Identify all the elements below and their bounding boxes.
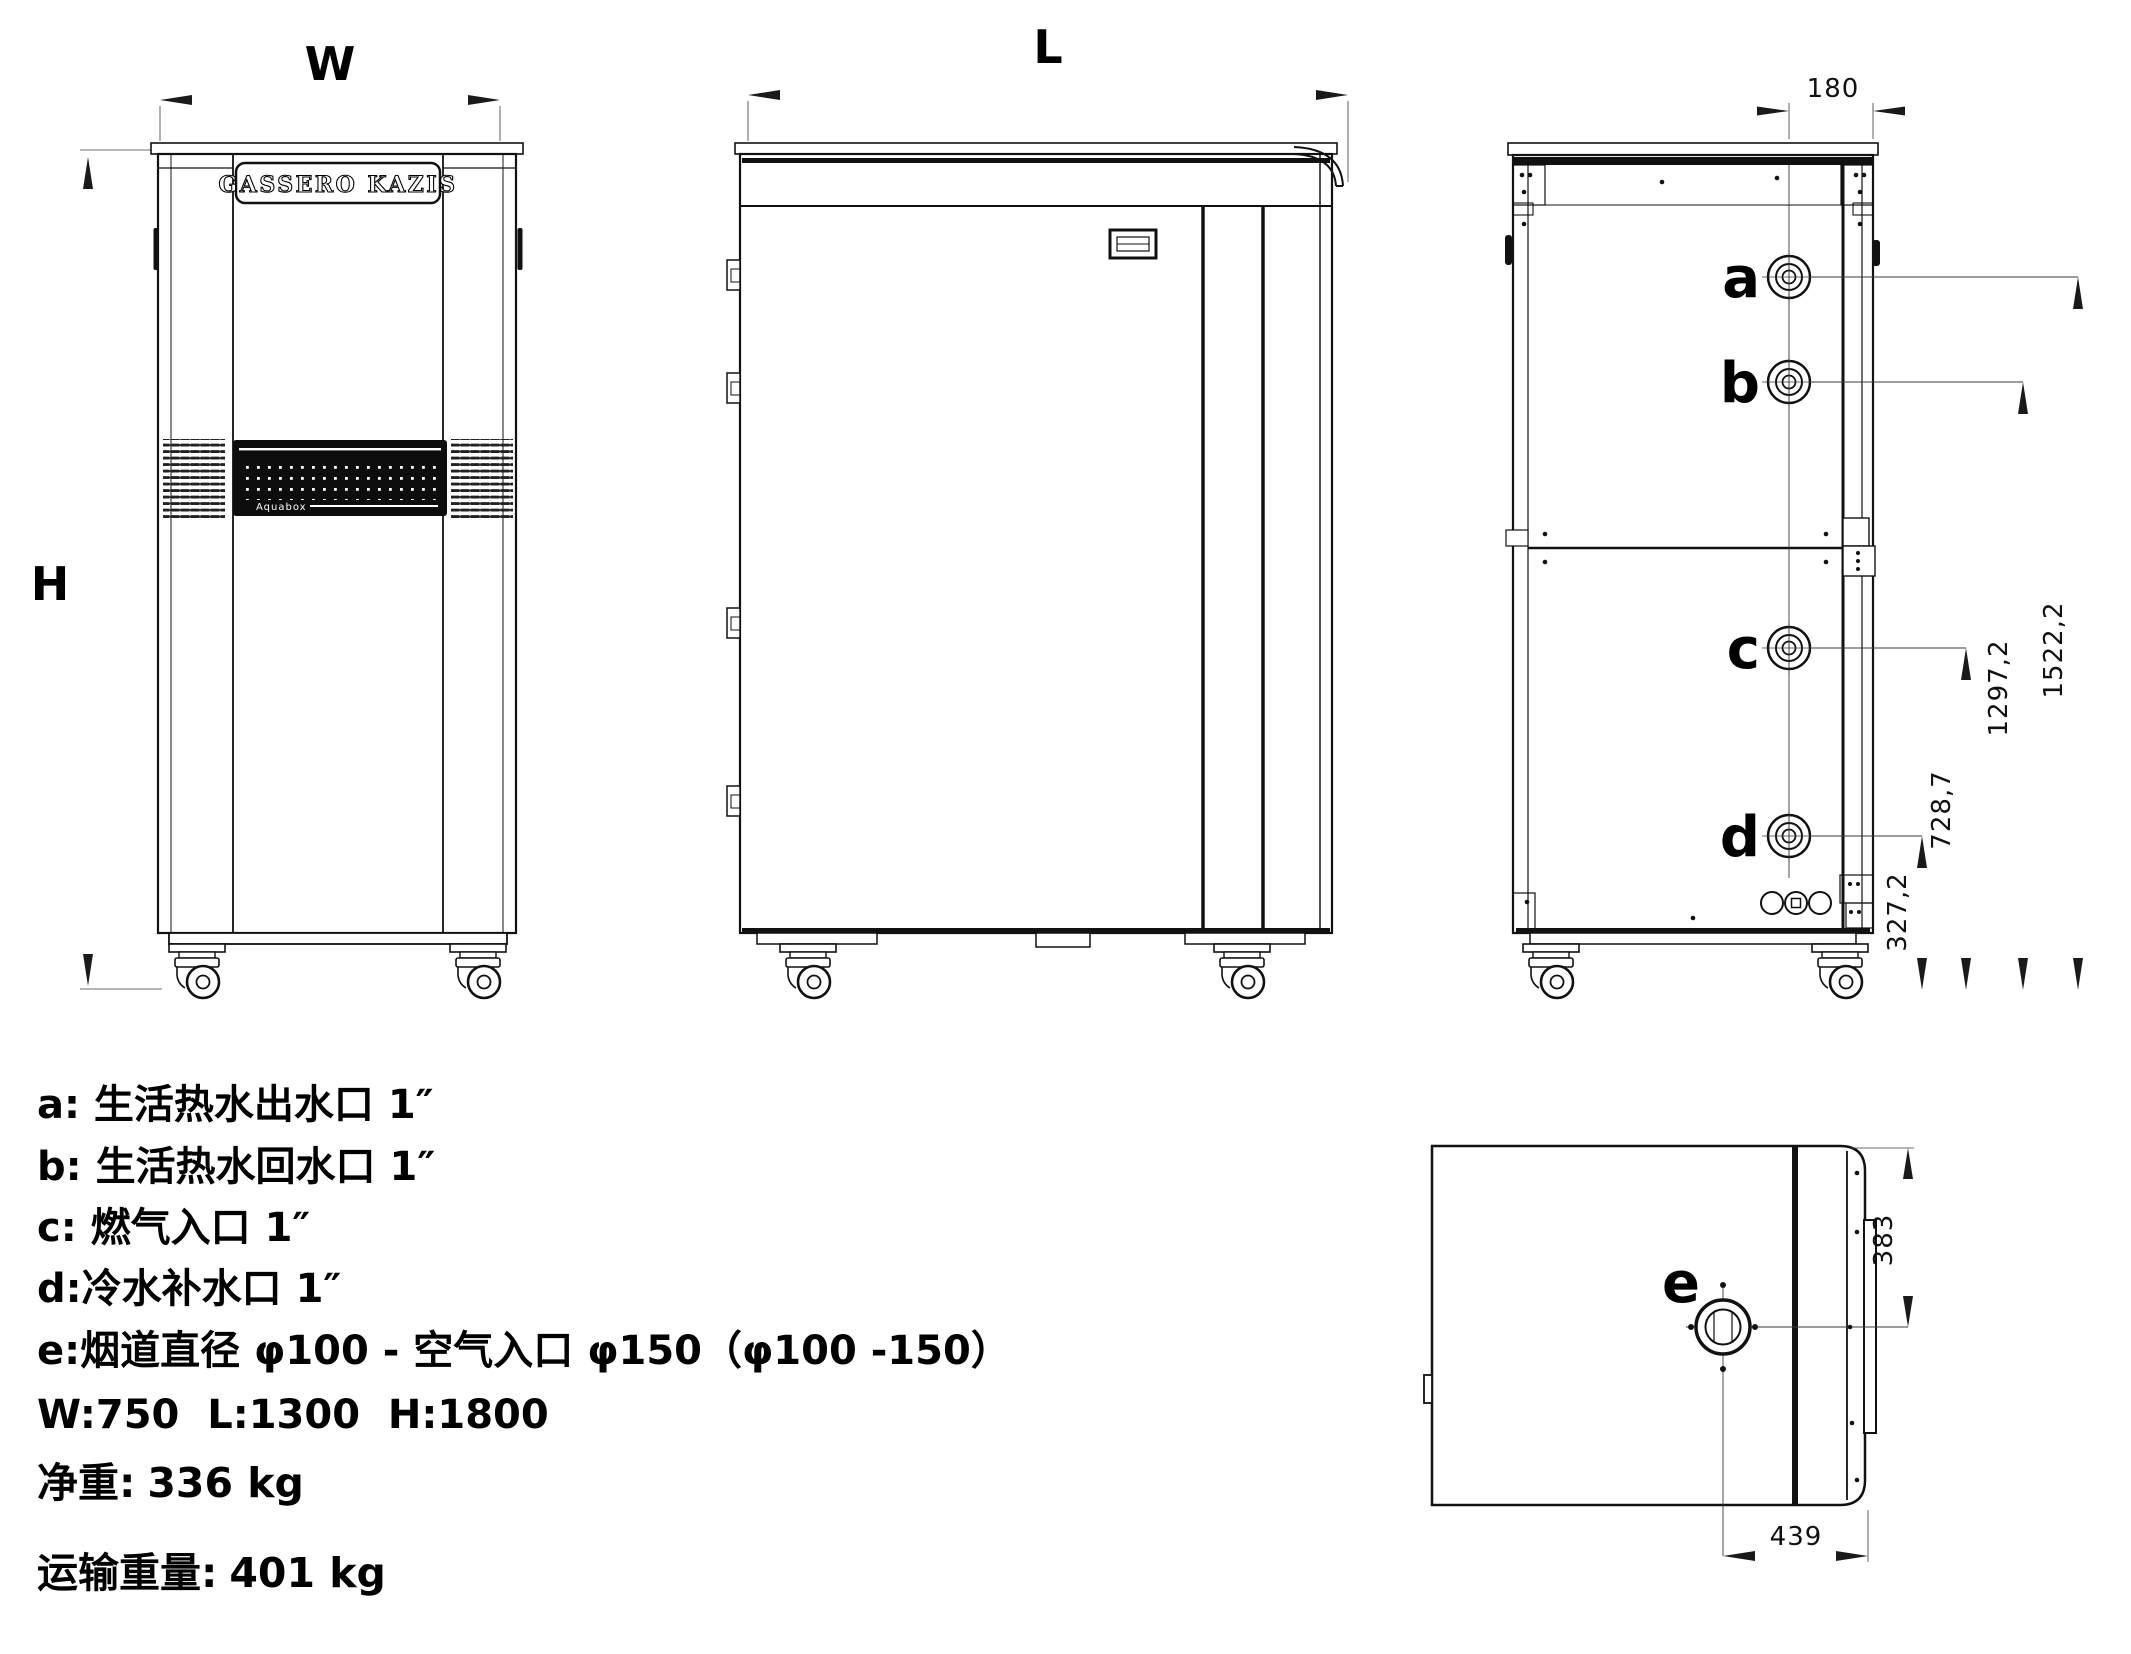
brand-nameplate-text: GASSERO KAZIS — [218, 172, 457, 198]
shipping-weight-line: 运输重量:401 kg — [37, 1550, 386, 1597]
arrow-down — [83, 954, 93, 986]
edge-latch — [1505, 235, 1512, 265]
door-hinge — [727, 608, 740, 638]
legend-text-c: 燃气入口 1″ — [91, 1205, 311, 1251]
port-e-label: e — [1662, 1251, 1700, 1316]
shipping-weight-value: 401 kg — [229, 1549, 385, 1597]
port-b: b — [1720, 351, 1816, 416]
legend-key-d: d: — [37, 1266, 82, 1312]
legend-dims-text: W:750 L:1300 H:1800 — [37, 1392, 549, 1438]
legend-line-e: e:烟道直径 φ100 - 空气入口 φ150（φ100 -150） — [37, 1328, 1011, 1374]
dim-1297: 1297,2 — [1984, 640, 2014, 737]
front-tab — [1424, 1375, 1432, 1403]
port-d-fitting — [1762, 809, 1816, 863]
top-cap — [151, 143, 523, 154]
dim-1522: 1522,2 — [2039, 602, 2069, 699]
bottom-opening — [1761, 892, 1783, 914]
net-weight-line: 净重:336 kg — [37, 1460, 304, 1507]
dim-439: 439 — [1723, 1510, 1868, 1562]
corner-bracket — [1513, 165, 1545, 205]
door-hinge — [727, 373, 740, 403]
width-dim-label: W — [305, 37, 356, 91]
door-hinge — [727, 786, 740, 816]
control-panel-logo: Aquabox — [256, 502, 307, 513]
dim-height: H — [31, 150, 162, 989]
control-panel-buttons[interactable] — [243, 458, 439, 500]
caster-wheel — [1812, 944, 1868, 998]
left-vent-grille — [163, 439, 225, 519]
dim-728: 728,7 — [1927, 770, 1957, 849]
door-badge — [1110, 230, 1156, 258]
top-view: e 383 439 — [1424, 1146, 1914, 1562]
left-edge-latch — [154, 228, 159, 270]
dim-327: 327,2 — [1883, 872, 1913, 951]
legend-line-d: d:冷水补水口 1″ — [37, 1266, 341, 1312]
rear-view: 180 a b c d 327,2 — [1505, 74, 2092, 998]
port-height-dims: 327,2 728,7 1297,2 1522,2 — [1812, 277, 2092, 990]
length-dim-label: L — [1033, 20, 1062, 74]
technical-drawing: W H GASSERO KAZIS — [0, 0, 2131, 1654]
dim-383-text: 383 — [1869, 1214, 1899, 1267]
right-vent-grille — [451, 439, 513, 519]
port-b-fitting — [1762, 355, 1816, 409]
dim-length: L — [748, 20, 1348, 182]
legend-text-d: 冷水补水口 1″ — [82, 1266, 342, 1312]
legend-key-a: a: — [37, 1082, 94, 1128]
legend-line-b: b: 生活热水回水口 1″ — [37, 1144, 435, 1190]
legend-key-c: c: — [37, 1205, 91, 1251]
arrow-up — [83, 157, 93, 189]
caster-wheel — [780, 944, 836, 998]
door-hinge — [727, 260, 740, 290]
center-bracket — [1036, 933, 1090, 947]
base-pad — [757, 933, 877, 944]
legend-dimensions-line: W:750 L:1300 H:1800 — [37, 1392, 549, 1438]
legend-text-a: 生活热水出水口 1″ — [94, 1082, 434, 1128]
legend-text-e: 烟道直径 φ100 - 空气入口 φ150（φ100 -150） — [80, 1328, 1011, 1374]
dim-439-text: 439 — [1770, 1522, 1823, 1552]
top-view-body — [1432, 1146, 1865, 1505]
side-view: L — [727, 20, 1348, 998]
port-a-label: a — [1722, 246, 1760, 311]
port-d-label: d — [1720, 805, 1760, 870]
front-view: W H GASSERO KAZIS — [31, 37, 523, 998]
caster-wheel — [1214, 944, 1270, 998]
dim-180: 180 — [1750, 74, 1912, 139]
net-weight-value: 336 kg — [147, 1459, 303, 1507]
legend-key-e: e: — [37, 1328, 80, 1374]
port-c: c — [1727, 617, 1816, 682]
port-b-label: b — [1720, 351, 1760, 416]
caster-wheel — [450, 944, 506, 998]
legend-line-c: c: 燃气入口 1″ — [37, 1205, 310, 1251]
top-cap — [1508, 143, 1878, 155]
offset-dim-text: 180 — [1807, 74, 1860, 104]
arrow-right — [468, 95, 500, 105]
side-cabinet — [727, 143, 1343, 998]
bottom-opening — [1809, 892, 1831, 914]
base-frame — [169, 933, 507, 944]
base-pad — [1185, 933, 1305, 944]
corner-bracket — [1841, 165, 1873, 205]
control-panel: Aquabox — [233, 440, 447, 516]
legend-line-a: a: 生活热水出水口 1″ — [37, 1082, 434, 1128]
port-a-fitting — [1762, 250, 1816, 304]
top-cap — [735, 143, 1337, 154]
bottom-opening — [1785, 892, 1807, 914]
front-cabinet: GASSERO KAZIS Aquabox — [151, 143, 523, 998]
port-a: a — [1722, 246, 1816, 311]
net-weight-label: 净重: — [37, 1459, 135, 1507]
arrow-left — [160, 95, 192, 105]
height-dim-label: H — [31, 557, 70, 611]
port-c-fitting — [1762, 621, 1816, 675]
dim-width: W — [160, 37, 500, 141]
dim-383: 383 — [1850, 1148, 1914, 1327]
port-c-label: c — [1727, 617, 1760, 682]
edge-latch — [1872, 240, 1880, 266]
rear-cabinet — [1505, 143, 1880, 998]
legend-text-b: 生活热水回水口 1″ — [96, 1144, 436, 1190]
caster-wheel — [1523, 944, 1579, 998]
legend-key-b: b: — [37, 1144, 96, 1190]
panel-hinge — [1843, 518, 1869, 546]
right-edge-latch — [518, 228, 523, 270]
caster-wheel — [169, 944, 225, 998]
port-d: d — [1720, 805, 1816, 870]
panel-hinge — [1506, 530, 1528, 546]
shipping-weight-label: 运输重量: — [37, 1549, 217, 1597]
